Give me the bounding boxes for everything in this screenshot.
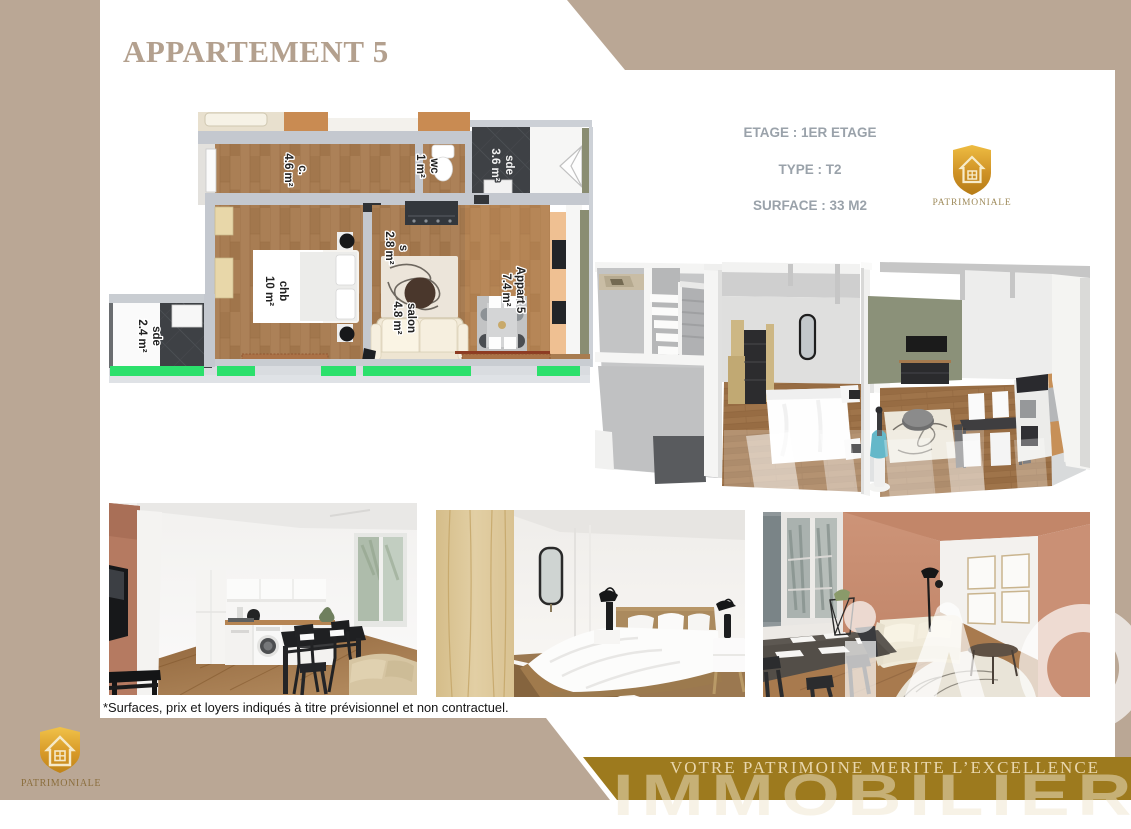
svg-text:3.6 m²: 3.6 m² bbox=[489, 148, 501, 181]
svg-text:4.8 m²: 4.8 m² bbox=[391, 301, 403, 334]
svg-text:wc: wc bbox=[428, 157, 440, 174]
svg-text:2.4 m²: 2.4 m² bbox=[136, 319, 148, 352]
svg-text:c.: c. bbox=[296, 165, 308, 175]
svg-text:sde: sde bbox=[503, 155, 515, 175]
svg-text:10 m²: 10 m² bbox=[263, 276, 275, 306]
svg-text:4.6 m²: 4.6 m² bbox=[282, 153, 294, 186]
svg-text:salon: salon bbox=[405, 303, 417, 333]
svg-text:1 m²: 1 m² bbox=[414, 154, 426, 178]
svg-text:Appart 5: Appart 5 bbox=[514, 267, 526, 314]
svg-text:2.8 m²: 2.8 m² bbox=[383, 231, 395, 264]
svg-text:chb: chb bbox=[277, 281, 289, 301]
svg-text:PATRIMONIALE: PATRIMONIALE bbox=[933, 198, 1012, 208]
svg-text:sde: sde bbox=[150, 326, 162, 346]
svg-text:PATRIMONIALE: PATRIMONIALE bbox=[21, 778, 101, 789]
svg-text:s: s bbox=[397, 245, 409, 251]
svg-text:7.4 m²: 7.4 m² bbox=[500, 273, 512, 306]
